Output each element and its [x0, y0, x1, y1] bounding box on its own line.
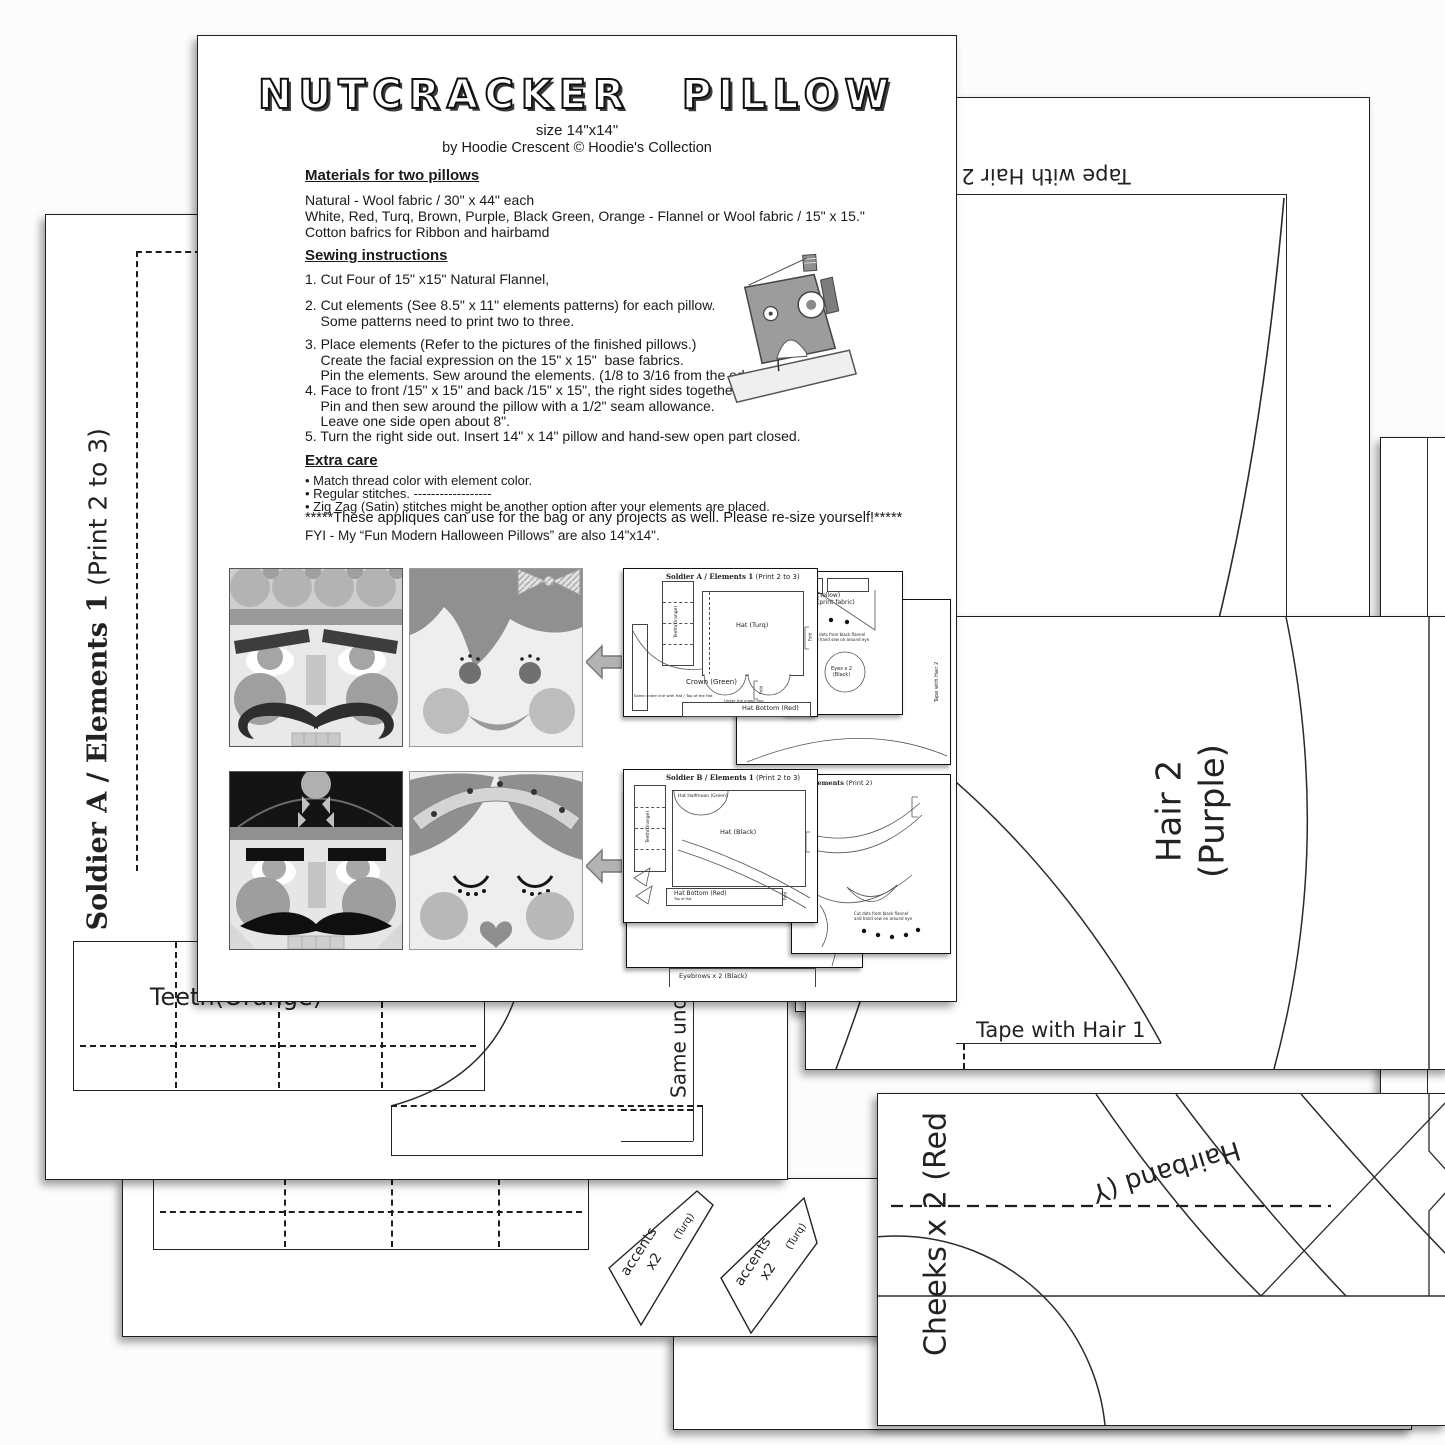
mini-fold-label: Fold — [808, 633, 813, 641]
pillow-girl2-image — [409, 771, 583, 950]
pattern-page-teeth2: accents x2 (Turq) accents x2 (Turq) — [122, 1178, 892, 1337]
pattern-page-cheeks: Cheeks x 2 (Red Hairband (Y — [877, 1093, 1445, 1426]
grid-dash-v — [391, 1179, 393, 1247]
materials-heading: Materials for two pillows — [305, 167, 479, 184]
pillow-soldier-a-image — [229, 568, 403, 747]
materials-text: Natural - Wool fabric / 30" x 44" each W… — [305, 192, 865, 240]
mini-hatbottom-label-b: Hat Bottom (Red) — [674, 890, 726, 897]
piece-dash-h — [621, 1109, 693, 1111]
grid-dash-h — [160, 1211, 582, 1213]
document-scan: Tape with Hair 2 Hair 1 (Purple) Hair 2 … — [0, 0, 1445, 1445]
hat-bottom-piece — [391, 1105, 703, 1156]
pillow-girl1-image — [409, 568, 583, 747]
teeth-grid — [153, 1178, 589, 1250]
pattern-preview-top: Tape with Hair 2 (Yellow) (print fabric)… — [621, 558, 953, 770]
mini-same-note: Same under line with Hat / Top of the Ha… — [634, 693, 713, 698]
arrow-left-icon — [586, 848, 622, 884]
step-5: 5. Turn the right side out. Insert 14" x… — [305, 429, 801, 445]
cheeks-pattern-lines — [878, 1094, 1445, 1425]
step-1: 1. Cut Four of 15" x15" Natural Flannel, — [305, 272, 549, 288]
mini-halfmoon-label: Hat Halfmoon (Green) — [678, 794, 728, 799]
size-line: size 14"x14" — [198, 122, 956, 139]
step-2: 2. Cut elements (See 8.5" x 11" elements… — [305, 298, 715, 329]
arrow-left-icon — [586, 644, 622, 680]
mini-eyebrows-label: Eyebrows x 2 (Black) — [679, 972, 747, 980]
extra-care-fyi: FYI - My “Fun Modern Halloween Pillows” … — [305, 528, 660, 543]
mini-fold-label: Fold — [759, 686, 764, 694]
sewing-machine-illustration — [715, 249, 875, 414]
step-3: 3. Place elements (Refer to the pictures… — [305, 337, 765, 384]
piece-edge-h — [621, 1141, 693, 1142]
cut-dots-note-2: Cut dots from black flannel and hand sew… — [854, 911, 912, 921]
grid-dash-v — [498, 1179, 500, 1247]
step-4: 4. Face to front /15" x 15" and back /15… — [305, 383, 740, 430]
grid-dash-v — [284, 1179, 286, 1247]
preview-sheet-soldier-a: Soldier A / Elements 1 (Print 2 to 3) Te… — [623, 568, 818, 717]
pattern-preview-bottom: Eyebrows x 2 (Black) Hair x 2 ( Elements… — [621, 764, 953, 969]
mini-crown-label: Crown (Green) — [686, 678, 737, 686]
eyes-x2-label: Eyes x 2 (Black) — [831, 666, 852, 678]
mini-hatblack-label: Hat (Black) — [720, 828, 756, 836]
byline: by Hoodie Crescent © Hoodie's Collection — [198, 140, 956, 156]
cut-dots-note: Cut dots from black flannel and hand sew… — [811, 632, 869, 642]
extra-care-stars: *****These appliques can use for the bag… — [305, 510, 902, 526]
page-title: NUTCRACKER PILLOW — [198, 72, 956, 118]
extra-care-heading: Extra care — [305, 452, 378, 469]
extra-care-text: • Match thread color with element color.… — [305, 474, 770, 513]
mini-hatbottom-label: Hat Bottom (Red) — [742, 704, 799, 712]
mini-fold-label-b: Fold — [783, 892, 788, 900]
preview-sheet-soldier-b: Soldier B / Elements 1 (Print 2 to 3) Te… — [623, 769, 818, 923]
cheeks-piece-label: Cheeks x 2 (Red — [917, 1112, 955, 1356]
pillow-soldier-b-image — [229, 771, 403, 950]
instruction-page: NUTCRACKER PILLOW size 14"x14" by Hoodie… — [197, 35, 957, 1002]
sewing-heading: Sewing instructions — [305, 247, 448, 264]
mini-topofhat-label: Top of Hat — [674, 897, 692, 901]
